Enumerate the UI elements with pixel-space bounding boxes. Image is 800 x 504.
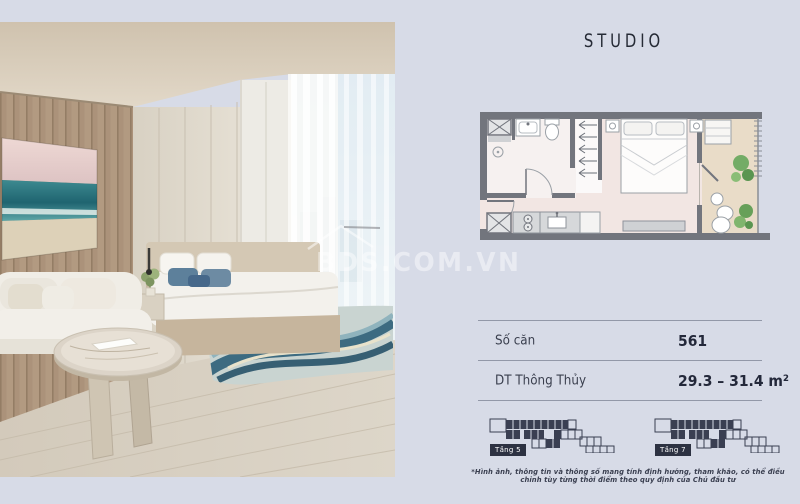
table-row: DT Thông Thủy 29.3 – 31.4 m² <box>478 361 762 401</box>
apartment-photo <box>0 22 395 477</box>
table-row: Số căn 561 <box>478 321 762 361</box>
row-label: Số căn <box>495 333 535 348</box>
interior-render <box>0 22 395 477</box>
key-plan-floor-5: Tầng 5 <box>488 417 622 463</box>
row-label: DT Thông Thủy <box>495 373 586 388</box>
floor-badge: Tầng 7 <box>655 444 691 456</box>
unit-info-table: Số căn 561 DT Thông Thủy 29.3 – 31.4 m² <box>478 320 762 401</box>
disclaimer-text: *Hình ảnh, thông tin và thông số mang tí… <box>468 468 788 484</box>
key-plan-floor-7: Tầng 7 <box>653 417 787 463</box>
floor-badge: Tầng 5 <box>490 444 526 456</box>
page: BDS.COM.VN STUDIO <box>0 0 800 504</box>
floor-plan <box>478 105 770 245</box>
row-value: 29.3 – 31.4 m² <box>678 372 789 390</box>
row-value: 561 <box>678 332 707 350</box>
page-title: STUDIO <box>510 30 738 52</box>
